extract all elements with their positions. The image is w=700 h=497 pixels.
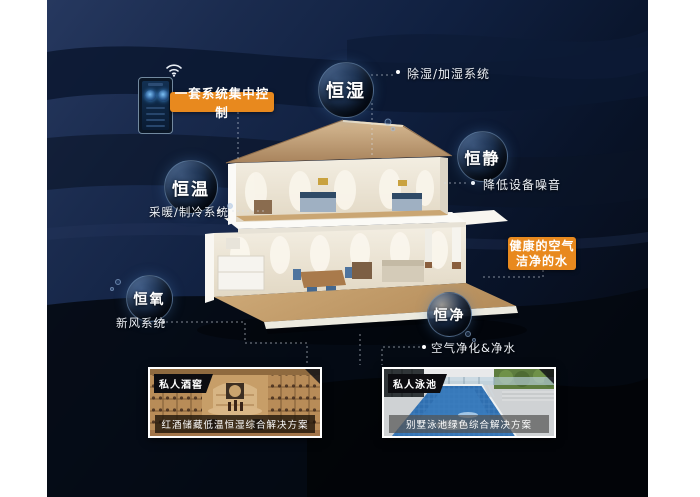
pool-caption: 别墅泳池绿色综合解决方案 (389, 415, 549, 433)
phone-menu-row (146, 119, 165, 121)
photo-corner-ribbon (539, 369, 554, 384)
pool-tag: 私人泳池 (388, 374, 447, 393)
bubble-label: 恒温 (172, 175, 210, 200)
callout-healthy-air-line2: 洁净的水 (516, 254, 568, 269)
note-heating-cooling-system: 采暖/制冷系统 (149, 204, 229, 220)
pool-photo: 私人泳池 别墅泳池绿色综合解决方案 (382, 367, 556, 438)
note-fresh-air-system: 新风系统 (116, 315, 166, 331)
phone-header-bar (148, 83, 163, 86)
wine-cellar-tag: 私人酒窖 (154, 374, 213, 393)
note-noise-reduction: 降低设备噪音 (483, 176, 561, 193)
wifi-icon (164, 61, 184, 77)
callout-healthy-air-line1: 健康的空气 (509, 239, 574, 254)
phone-menu-row (146, 125, 165, 127)
smart-home-control-phone (138, 77, 173, 134)
photo-corner-ribbon (305, 369, 320, 384)
bubble-label: 恒湿 (326, 77, 366, 103)
phone-menu-row (146, 107, 165, 109)
bubble-constant-clean: 恒净 (427, 292, 472, 337)
phone-menu-row (146, 113, 165, 115)
bubble-constant-humidity: 恒湿 (318, 62, 374, 118)
note-air-water-purification: 空气净化&净水 (431, 340, 516, 356)
bubble-label: 恒静 (464, 145, 500, 169)
wine-cellar-caption: 红酒储藏低温恒湿综合解决方案 (155, 415, 315, 433)
poster-canvas: 一套系统集中控制 健康的空气 洁净的水 恒湿 恒静 恒温 恒氧 恒净 除湿/加湿… (0, 0, 700, 497)
bubble-label: 恒净 (434, 305, 466, 325)
wine-cellar-photo: 私人酒窖 红酒储藏低温恒湿综合解决方案 (148, 367, 322, 438)
callout-central-control-text: 一套系统集中控制 (170, 83, 274, 121)
bubble-label: 恒氧 (134, 289, 166, 309)
callout-healthy-air: 健康的空气 洁净的水 (508, 237, 576, 270)
phone-screen (142, 81, 169, 130)
bubble-constant-quiet: 恒静 (457, 131, 508, 182)
callout-central-control: 一套系统集中控制 (170, 92, 274, 112)
phone-dial-icon (145, 90, 156, 101)
phone-dial-icon (158, 90, 169, 101)
note-dehumidify-system: 除湿/加湿系统 (407, 65, 490, 82)
